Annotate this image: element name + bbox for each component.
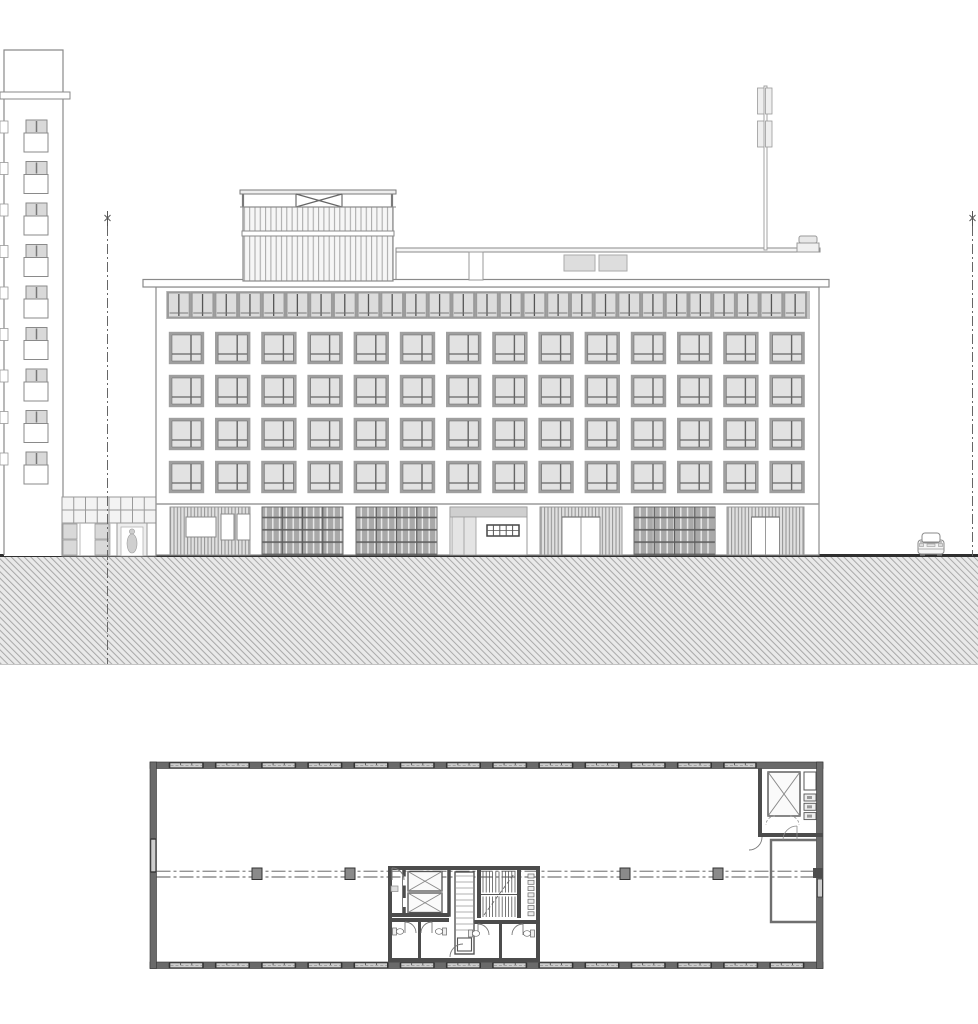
site-ground-section <box>0 556 978 665</box>
upper-floor-plan <box>150 762 823 969</box>
neighbor-tower-elevation <box>0 50 70 556</box>
annex-building-elevation <box>62 497 156 556</box>
architectural-drawing-sheet <box>0 0 978 1024</box>
architectural-drawing <box>0 0 978 1024</box>
main-building-rooftop <box>240 86 820 281</box>
car-icon <box>918 533 944 556</box>
main-building-ground-floor <box>170 507 804 555</box>
